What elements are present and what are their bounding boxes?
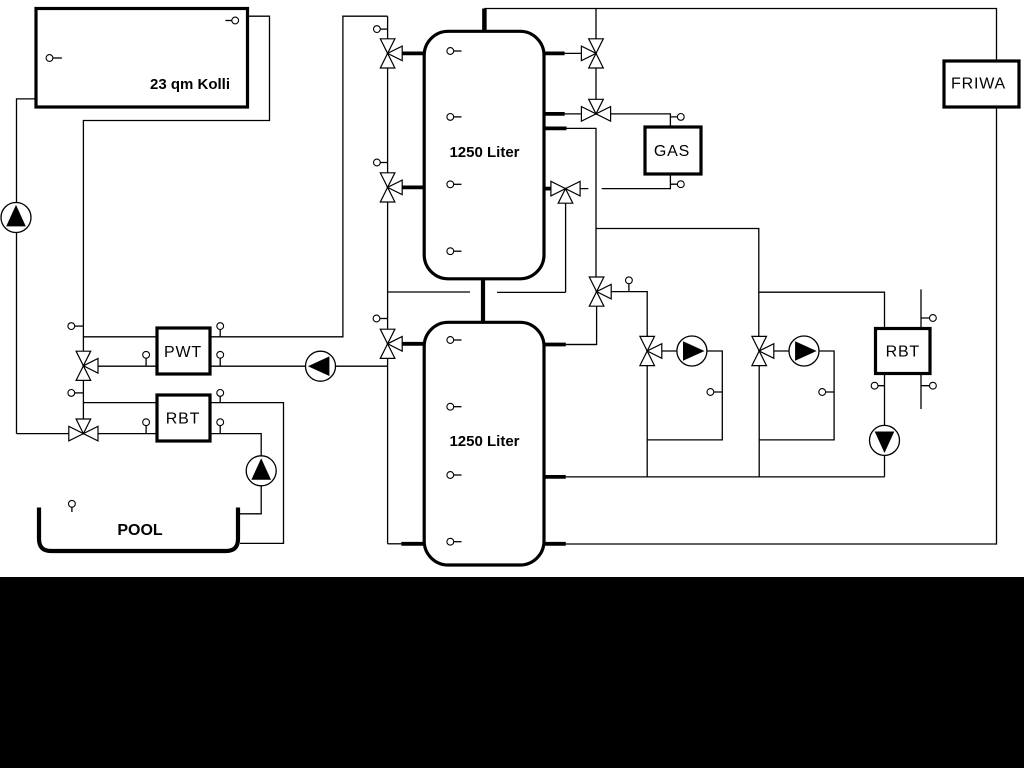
svg-text:PWT: PWT xyxy=(164,344,202,361)
svg-text:1250 Liter: 1250 Liter xyxy=(449,144,519,161)
svg-text:1250 Liter: 1250 Liter xyxy=(449,433,519,450)
svg-text:RBT: RBT xyxy=(886,344,920,361)
svg-text:23 qm Kolli: 23 qm Kolli xyxy=(150,76,230,93)
svg-text:RBT: RBT xyxy=(166,411,200,428)
svg-text:POOL: POOL xyxy=(117,522,163,539)
svg-text:GAS: GAS xyxy=(654,143,690,160)
svg-text:FRIWA: FRIWA xyxy=(951,76,1006,93)
